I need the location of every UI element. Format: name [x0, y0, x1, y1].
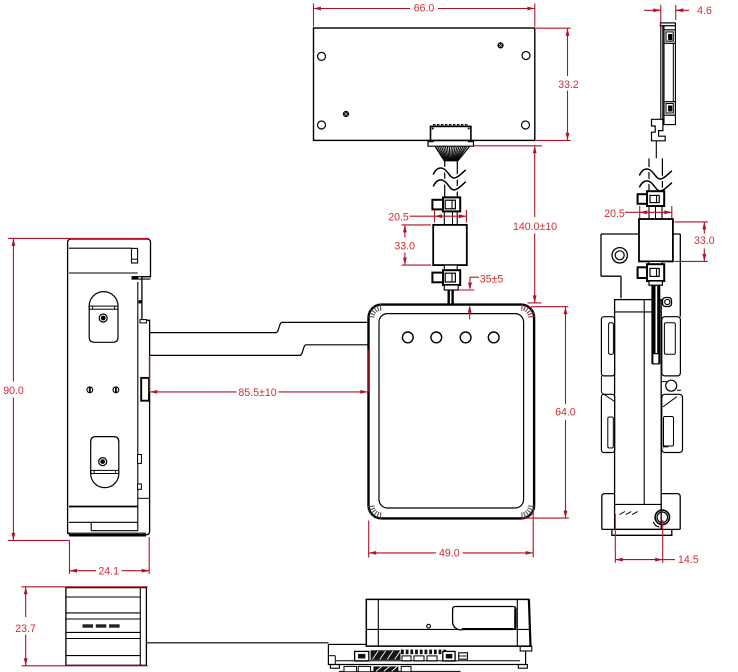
- svg-text:14.5: 14.5: [678, 554, 699, 566]
- svg-text:24.1: 24.1: [98, 565, 119, 577]
- svg-text:85.5±10: 85.5±10: [238, 387, 276, 399]
- svg-text:35±5: 35±5: [480, 274, 504, 286]
- svg-text:33.2: 33.2: [558, 79, 579, 91]
- svg-text:23.7: 23.7: [15, 623, 36, 635]
- svg-text:33.0: 33.0: [694, 235, 715, 247]
- svg-text:90.0: 90.0: [3, 385, 24, 397]
- svg-text:64.0: 64.0: [555, 407, 576, 419]
- svg-text:66.0: 66.0: [414, 3, 435, 15]
- svg-text:33.0: 33.0: [394, 241, 415, 253]
- svg-text:140.0±10: 140.0±10: [513, 221, 557, 233]
- svg-text:20.5: 20.5: [388, 211, 409, 223]
- svg-text:4.6: 4.6: [697, 5, 712, 17]
- svg-text:49.0: 49.0: [439, 548, 460, 560]
- svg-text:20.5: 20.5: [604, 208, 625, 220]
